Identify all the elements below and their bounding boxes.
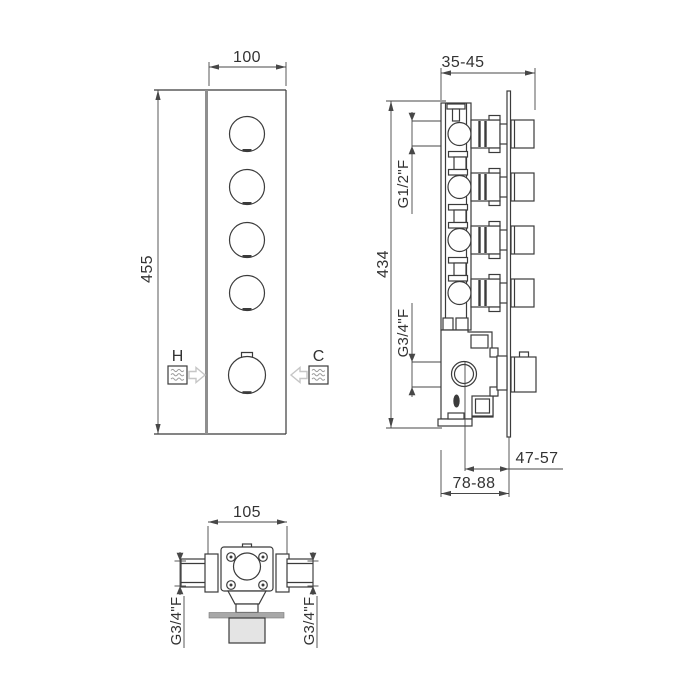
top-width-dim-label: 105 (233, 504, 261, 521)
control-knob-circles (230, 117, 265, 311)
body-to-wall-dim-label: 78-88 (453, 475, 496, 492)
thermostat-port-circle (452, 362, 477, 387)
thermostatic-valve-technical-drawing: 100 455 H C (0, 0, 700, 700)
right-pipe (276, 554, 313, 592)
side-upper-port-label: G1/2"F (395, 160, 412, 209)
center-to-wall-dim-label: 47-57 (516, 450, 559, 467)
front-width-dim-label: 100 (233, 49, 261, 66)
body-to-wall-dimension: 78-88 (441, 450, 509, 497)
top-left-port-label: G3/4"F (168, 597, 185, 646)
cold-flow-arrow-icon (291, 368, 307, 383)
front-width-dimension: 100 (209, 49, 286, 86)
escutcheon-plate (209, 613, 284, 619)
top-right-port-label: G3/4"F (301, 597, 318, 646)
side-view: 35-45 434 G1/2"F G3/4"F (375, 54, 563, 497)
hot-inlet: H (168, 348, 205, 384)
front-height-dim-label: 455 (139, 255, 156, 283)
front-view: 100 455 H C (139, 49, 328, 434)
cold-label: C (313, 348, 325, 365)
left-pipe (181, 554, 218, 592)
side-depth-dimension: 35-45 (441, 54, 535, 110)
valve-body-top (209, 544, 284, 643)
connector-stub (456, 318, 468, 330)
connector-stub (443, 318, 453, 330)
side-height-dim-label: 434 (375, 250, 392, 278)
handle-knob-top (229, 618, 265, 643)
cartridge-circle (234, 553, 261, 580)
thermostat-knob-circle (229, 353, 266, 394)
cold-inlet: C (291, 348, 328, 384)
side-lower-port-label: G3/4"F (395, 309, 412, 358)
side-depth-dim-label: 35-45 (442, 54, 485, 71)
hot-label: H (172, 348, 184, 365)
drawing-page: 100 455 H C (0, 0, 700, 700)
top-view: 105 (168, 504, 319, 648)
hot-flow-arrow-icon (189, 368, 205, 383)
front-height-dimension: 455 (139, 90, 158, 434)
